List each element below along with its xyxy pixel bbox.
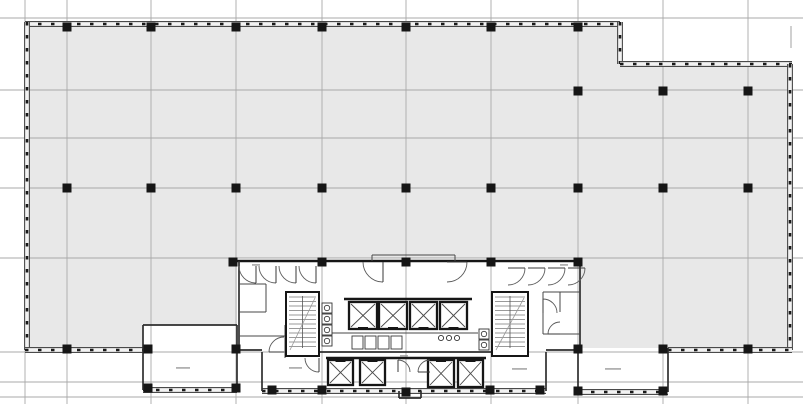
structural-column [574, 87, 583, 96]
fixture-box [479, 329, 489, 339]
structural-column [574, 387, 583, 396]
fixture-box [322, 336, 332, 346]
structural-column [487, 258, 496, 267]
structural-column [659, 345, 668, 354]
structural-column [486, 386, 495, 395]
structural-column [574, 258, 583, 267]
structural-column [144, 384, 153, 393]
structural-column [268, 386, 277, 395]
structural-column [659, 387, 668, 396]
structural-column [63, 23, 72, 32]
illegible-annotation [252, 264, 260, 266]
structural-column [487, 23, 496, 32]
structural-column [402, 184, 411, 193]
structural-column [232, 345, 241, 354]
structural-column [744, 345, 753, 354]
elevator-door-sill [436, 359, 446, 362]
structural-column [144, 345, 153, 354]
structural-column [402, 388, 411, 397]
floor-plan-viewport [0, 0, 803, 404]
elevator-door-sill [449, 327, 459, 330]
elevator-bank-upper [349, 302, 467, 330]
elevator-door-sill [388, 327, 398, 330]
structural-column [574, 23, 583, 32]
structural-column [487, 184, 496, 193]
structural-column [402, 23, 411, 32]
structural-column [318, 386, 327, 395]
floor-plan-drawing [0, 0, 803, 404]
structural-column [574, 345, 583, 354]
illegible-annotation [605, 368, 621, 370]
elevator-door-sill [419, 327, 429, 330]
elevator-door-sill [368, 359, 378, 362]
core-cutout [143, 325, 237, 390]
illegible-annotation [176, 367, 190, 369]
elevator-door-sill [358, 327, 368, 330]
illegible-annotation [289, 367, 302, 369]
structural-column [659, 184, 668, 193]
elevator-door-sill [336, 359, 346, 362]
structural-column [318, 23, 327, 32]
structural-column [63, 184, 72, 193]
fixture-box [322, 314, 332, 324]
fixture-box [322, 303, 332, 313]
structural-column [574, 184, 583, 193]
stairwell [492, 292, 528, 356]
stairwell [286, 292, 319, 356]
fixture-box [479, 340, 489, 350]
structural-column [659, 87, 668, 96]
fixture-box [322, 325, 332, 335]
structural-column [63, 345, 72, 354]
structural-column [232, 184, 241, 193]
structural-column [147, 184, 156, 193]
illegible-annotation [400, 355, 408, 357]
structural-column [536, 386, 545, 395]
structural-column [147, 23, 156, 32]
structural-column [318, 258, 327, 267]
structural-column [232, 384, 241, 393]
core-cutout [578, 348, 668, 392]
elevator-door-sill [466, 359, 476, 362]
structural-column [232, 23, 241, 32]
illegible-annotation [512, 368, 527, 370]
structural-column [744, 184, 753, 193]
structural-column [318, 184, 327, 193]
floor-plate [25, 21, 792, 392]
illegible-annotation [560, 264, 568, 266]
structural-column [402, 258, 411, 267]
structural-column [229, 258, 238, 267]
structural-column [744, 87, 753, 96]
